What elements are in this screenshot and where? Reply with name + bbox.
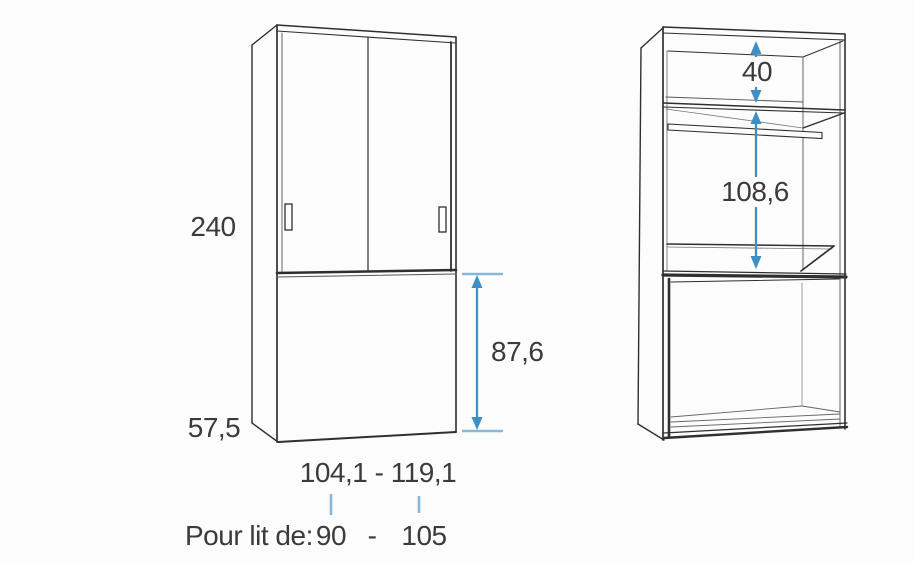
top-shelf-height-label: 40 [737, 57, 777, 87]
bed-box-height-label: 87,6 [491, 338, 544, 366]
interior-view-drawing [638, 27, 847, 440]
open-bed-box [664, 279, 847, 438]
hanging-space-height-label: 108,6 [716, 177, 794, 207]
width-callout-ticks [331, 494, 419, 515]
bed-note-prefix: Pour lit de: [185, 522, 313, 550]
sliding-doors [282, 33, 451, 273]
front-view-drawing [252, 25, 456, 442]
front-depth-label: 57,5 [188, 414, 241, 442]
bottom-shelf [667, 244, 834, 271]
interior-side-panel [638, 27, 664, 440]
bed-note-max: 105 [401, 522, 446, 550]
right-door-handle [439, 207, 446, 232]
bed-note-min: 90 [316, 522, 346, 550]
width-range-label: 104,1 - 119,1 [300, 459, 456, 487]
hanging-rail [668, 124, 822, 139]
bed-note-dash: - [368, 522, 377, 550]
front-view-side-panel [252, 25, 278, 442]
front-height-label: 240 [190, 213, 235, 241]
left-door-handle [285, 204, 292, 230]
dimension-diagram: 240 57,5 87,6 104,1 - 119,1 Pour lit de:… [0, 0, 913, 563]
